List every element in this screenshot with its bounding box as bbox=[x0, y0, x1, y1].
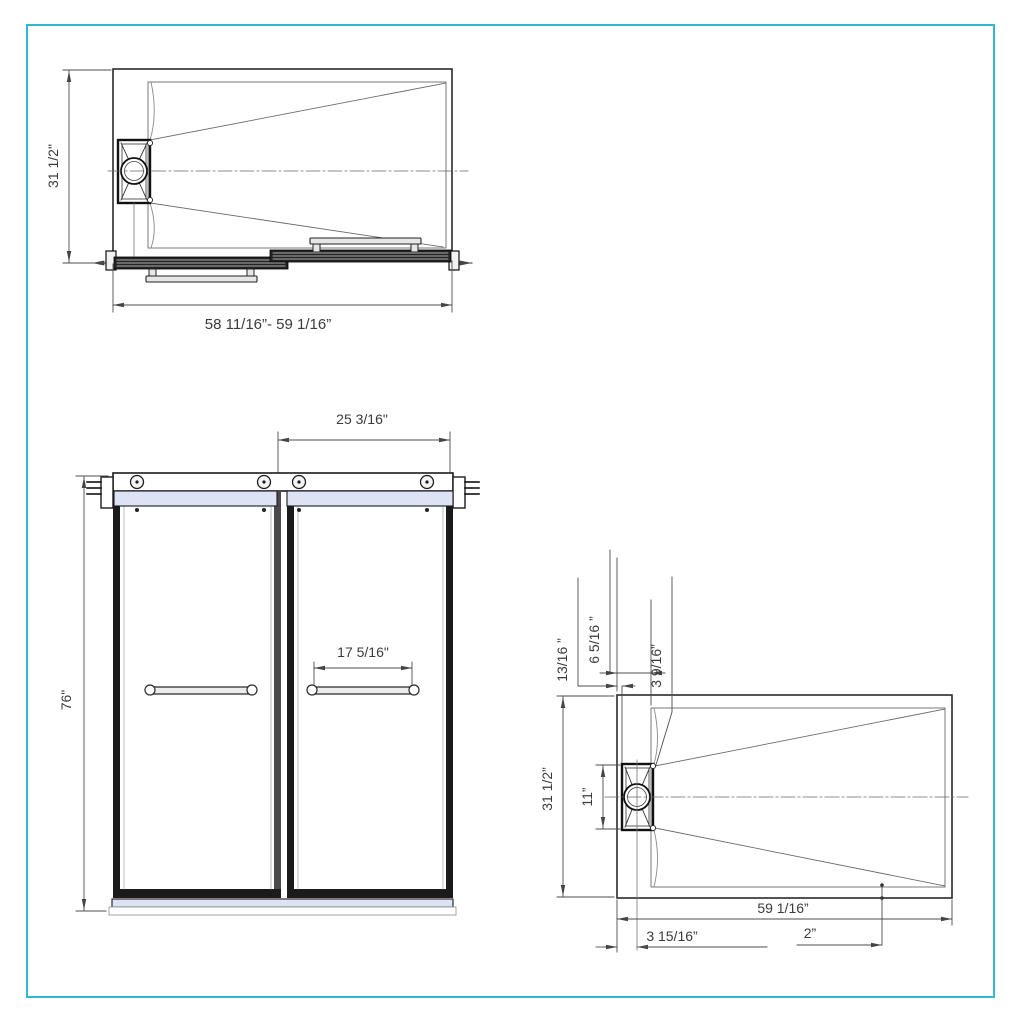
dim-top-width-range: 58 11/16”- 59 1/16” bbox=[205, 316, 331, 333]
wall-bracket-right bbox=[453, 477, 479, 508]
rail-screw bbox=[135, 508, 139, 512]
rail-screw bbox=[297, 508, 301, 512]
header-track bbox=[113, 473, 453, 491]
bottom-sill bbox=[112, 899, 453, 907]
dim-drain-center-offset: 3 15/16” bbox=[646, 928, 698, 944]
dim-handle-length: 17 5/16" bbox=[337, 644, 389, 660]
height-dimension bbox=[76, 476, 108, 911]
wall-bracket-left bbox=[87, 477, 113, 508]
drain-clamp bbox=[650, 763, 655, 768]
drawing-canvas: 31 1/2" 58 11/16”- 59 1/16” 25 3/16" bbox=[0, 0, 1024, 1024]
door-bottom-rail bbox=[287, 889, 453, 898]
dim-height: 76" bbox=[58, 690, 74, 711]
rail-screw bbox=[262, 508, 266, 512]
dim-drain-corner: 3 9/16” bbox=[648, 644, 664, 688]
handle-front bbox=[145, 685, 257, 695]
dim-drain-length: 11” bbox=[579, 787, 595, 807]
dim-bottom-rim: 2” bbox=[804, 925, 817, 941]
glass-top-rail bbox=[114, 491, 277, 506]
dim-width: 59 1/16” bbox=[757, 900, 809, 916]
base-edge-front bbox=[109, 907, 456, 915]
top-view: 31 1/2" 58 11/16”- 59 1/16” bbox=[45, 69, 472, 333]
reference-point bbox=[880, 883, 884, 887]
dim-drain-inset: 6 5/16 ” bbox=[586, 616, 602, 664]
glass-top-rail bbox=[287, 491, 453, 506]
drain-clamp bbox=[650, 825, 655, 830]
panel-width-dimension bbox=[278, 432, 450, 472]
rail-screw bbox=[425, 508, 429, 512]
dim-rim-to-drain: 13/16 ” bbox=[554, 638, 570, 682]
base-outline bbox=[113, 69, 452, 259]
drain-clamp bbox=[147, 140, 152, 145]
dim-panel-width: 25 3/16" bbox=[336, 411, 388, 427]
drain-clamp bbox=[147, 197, 152, 202]
drawing-page: 31 1/2" 58 11/16”- 59 1/16” 25 3/16" bbox=[0, 0, 1024, 1024]
base-outline bbox=[617, 695, 952, 898]
handle-front bbox=[307, 685, 419, 695]
front-view: 25 3/16" bbox=[58, 411, 479, 915]
door-frame bbox=[113, 491, 120, 898]
door-frame bbox=[274, 491, 281, 898]
handle-dimension bbox=[314, 662, 412, 684]
handle-plan bbox=[146, 269, 257, 282]
door-frame bbox=[287, 491, 294, 898]
base-plan-view: 13/16 ” 6 5/16 ” 3 9/16” 31 1/2” 11” bbox=[539, 550, 968, 952]
dim-top-depth: 31 1/2" bbox=[45, 144, 61, 188]
dim-depth: 31 1/2” bbox=[539, 767, 555, 811]
reference-point bbox=[880, 896, 884, 900]
door-frame bbox=[446, 491, 453, 898]
door-bottom-rail bbox=[113, 889, 281, 898]
